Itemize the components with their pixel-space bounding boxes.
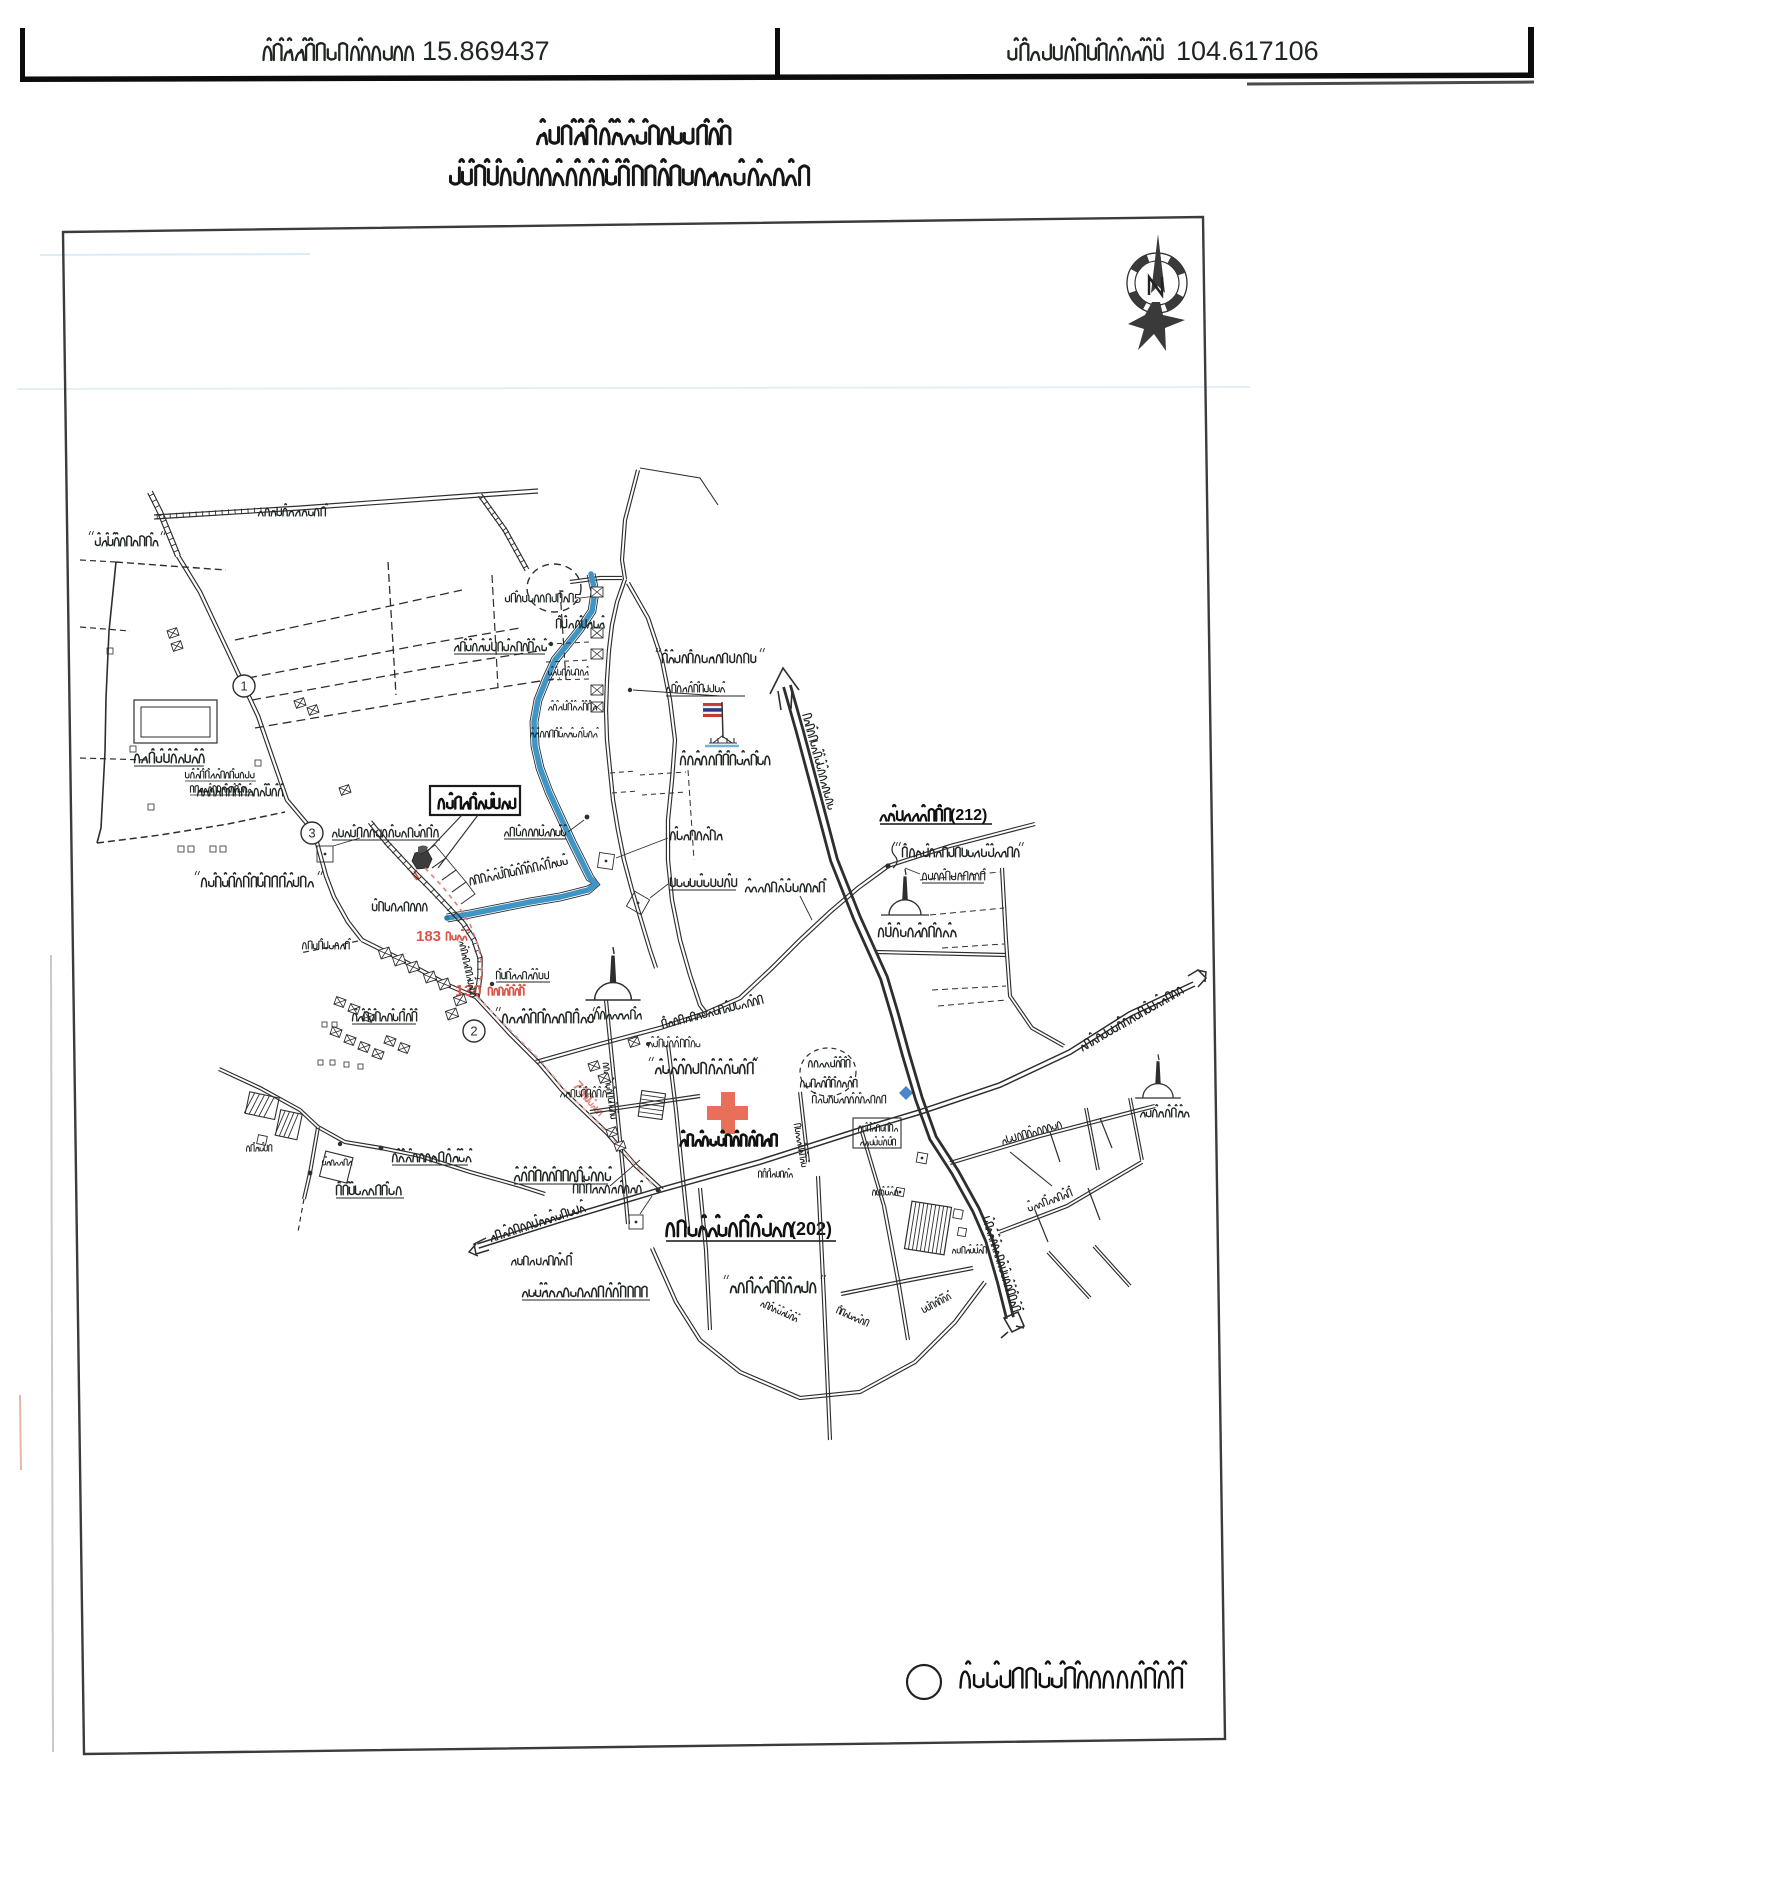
svg-text:15.869437: 15.869437 [422, 36, 550, 66]
svg-text:1: 1 [240, 679, 247, 694]
svg-text:(212): (212) [950, 807, 987, 824]
svg-text:5: 5 [574, 591, 581, 606]
svg-text:3: 3 [308, 826, 315, 841]
svg-text:(202): (202) [790, 1219, 832, 1239]
svg-text:2: 2 [470, 1024, 477, 1039]
svg-text:104.617106: 104.617106 [1176, 36, 1319, 66]
svg-text:183: 183 [416, 928, 441, 945]
